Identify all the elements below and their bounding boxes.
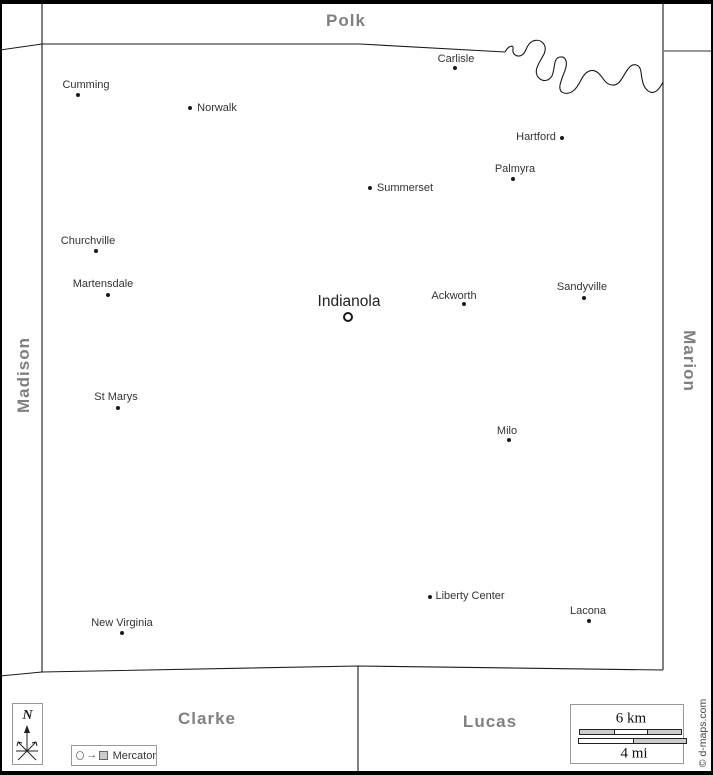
town-label: St Marys [94,391,137,403]
town-label: Liberty Center [435,590,504,602]
town-dot [462,302,466,306]
town-dot [560,136,564,140]
town-dot [76,93,80,97]
river [505,40,663,93]
town-dot [582,296,586,300]
town-dot [507,438,511,442]
town-dot [428,595,432,599]
scale-segment [580,730,614,734]
town-label: Lacona [570,605,606,617]
town-dot [94,249,98,253]
town-label: Hartford [516,131,556,143]
town-label: Ackworth [431,290,476,302]
neighbor-label-madison: Madison [14,337,34,413]
town-label: Norwalk [197,102,237,114]
neighbor-label-polk: Polk [326,11,366,31]
town-dot [587,619,591,623]
town-dot [453,66,457,70]
town-dot [106,293,110,297]
scale-segment [633,739,687,743]
town-dot [188,106,192,110]
county-seat-marker [343,312,353,322]
scale-km-label: 6 km [616,711,646,728]
neighbor-label-lucas: Lucas [463,712,517,732]
compass-rose-icon [13,724,42,764]
scale-box: 6 km 4 mi [570,704,684,764]
town-dot [368,186,372,190]
projection-legend: → Mercator [71,745,157,766]
copyright-notice: © d-maps.com [697,699,709,767]
town-label: Cumming [62,79,109,91]
town-label: Palmyra [495,163,535,175]
scale-segment [614,730,648,734]
county-seat-label: Indianola [318,293,381,311]
boundaries-svg [0,0,713,775]
projection-name: Mercator [110,750,156,762]
scale-mi-label: 4 mi [620,746,647,763]
town-label: Martensdale [73,278,134,290]
town-label: Sandyville [557,281,607,293]
scale-bar-mi [578,738,687,744]
projected-square-icon [99,751,107,760]
town-label: Summerset [377,182,433,194]
neighbor-label-marion: Marion [679,330,699,392]
town-dot [120,631,124,635]
neighbor-label-clarke: Clarke [178,709,236,729]
county-map: Polk Madison Marion Clarke Lucas Cumming… [0,0,713,775]
frame-top [0,0,713,4]
north-compass-box: N [12,703,43,765]
town-label: Milo [497,425,517,437]
arrow-right-icon: → [86,750,97,761]
town-label: Carlisle [438,53,475,65]
frame-left [0,0,2,775]
town-dot [511,177,515,181]
north-border-line [0,44,505,52]
scale-bar-km [579,729,682,735]
town-label: Churchville [61,235,115,247]
frame-bottom [0,771,713,775]
scale-segment [647,730,681,734]
north-label: N [13,708,42,724]
globe-circle-icon [76,751,84,760]
town-label: New Virginia [91,617,153,629]
town-dot [116,406,120,410]
scale-segment [579,739,633,743]
south-border-line [0,666,663,676]
